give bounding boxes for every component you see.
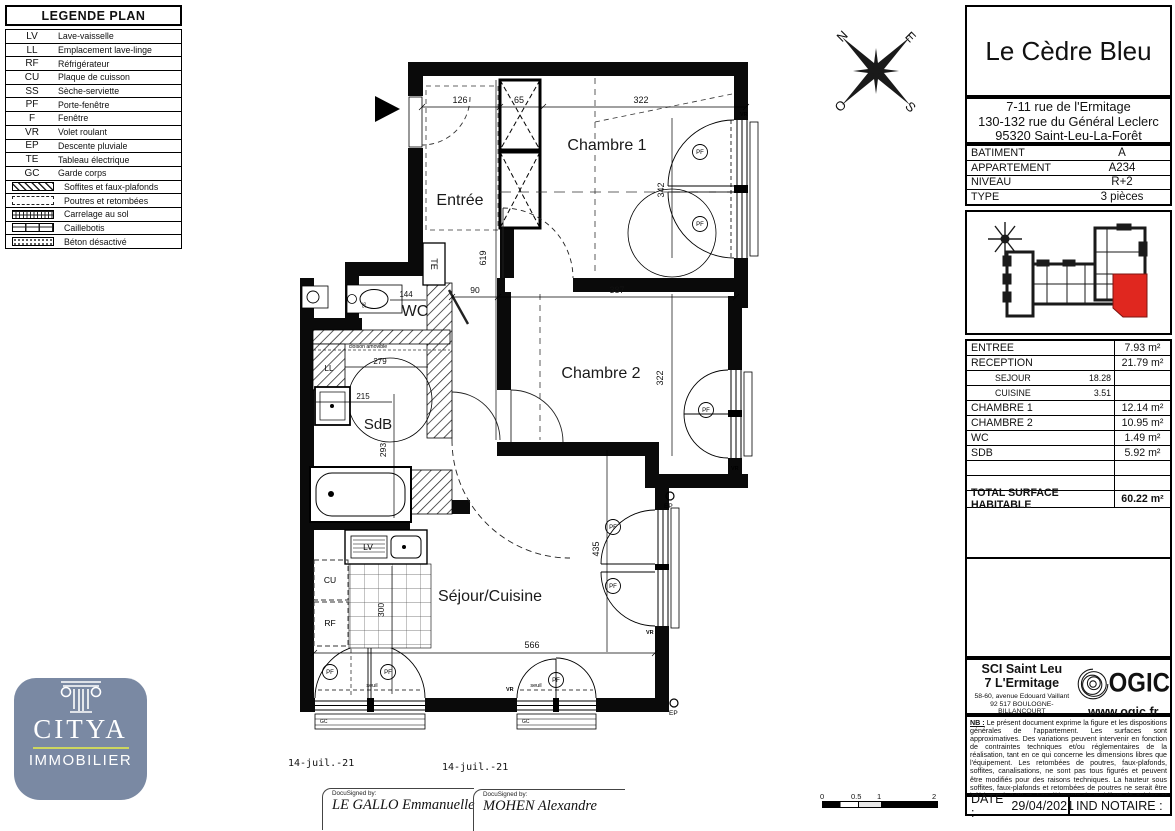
surface-value: 12.14 m² [1115, 402, 1170, 414]
legend-label: Descente pluviale [58, 141, 127, 151]
date-label: DATE : [971, 792, 1003, 820]
info-row: BATIMENTA [967, 146, 1170, 161]
docusign-label: DocuSigned by: [332, 790, 474, 797]
legend-row: VRVolet roulant [6, 126, 181, 140]
signatory-name: MOHEN Alexandre [483, 798, 625, 815]
seuil-label: seuil [530, 683, 541, 689]
info-label: APPARTEMENT [967, 162, 1074, 174]
surface-row: SDB5.92 m² [967, 446, 1170, 461]
svg-text:300: 300 [376, 603, 386, 617]
info-value: A234 [1074, 162, 1170, 174]
signature-date-1: 14-juil.-21 [288, 758, 354, 769]
legend-panel: LEGENDE PLAN LVLave-vaisselle LLEmplacem… [5, 5, 182, 249]
date-row: DATE : 29/04/2021 IND NOTAIRE : [965, 795, 1172, 816]
svg-text:215: 215 [356, 392, 370, 401]
legend-label: Tableau électrique [58, 155, 129, 165]
legend-pattern-row: Caillebotis [6, 222, 181, 236]
info-label: NIVEAU [967, 176, 1074, 188]
surface-label: SEJOUR [971, 373, 1031, 383]
legend-row: LLEmplacement lave-linge [6, 44, 181, 58]
legend-row: GCGarde corps [6, 167, 181, 181]
signature-date-2: 14-juil.-21 [442, 762, 508, 773]
room-sdb: SdB [364, 416, 392, 433]
surface-row: WC1.49 m² [967, 431, 1170, 446]
svg-text:322: 322 [655, 370, 665, 385]
surface-row: CUISINE3.51 [967, 386, 1170, 401]
svg-text:435: 435 [591, 541, 601, 556]
nb-label: NB : [970, 719, 985, 727]
legend-abbr: SS [6, 86, 58, 97]
legend-title: LEGENDE PLAN [5, 5, 182, 26]
legend-pattern-row: Soffites et faux-plafonds [6, 181, 181, 195]
dashed-swatch-icon [12, 196, 54, 205]
legend-abbr: F [6, 113, 58, 124]
cloison-label: cloison amovible [349, 344, 387, 350]
window-sejour-south1: seuil GC [315, 644, 425, 729]
surface-sub: 3.51 [1094, 388, 1111, 398]
svg-text:293: 293 [378, 443, 388, 457]
legend-label: Réfrigérateur [58, 59, 109, 69]
ep-label: EP [669, 710, 678, 717]
legend-abbr: PF [6, 99, 58, 110]
cu-label: CU [324, 575, 336, 585]
surface-value: 10.95 m² [1115, 417, 1170, 429]
svg-text:342: 342 [656, 182, 666, 197]
svg-text:322: 322 [633, 95, 648, 105]
legend-label: Volet roulant [58, 127, 107, 137]
vr-label: VR [731, 466, 739, 472]
compass-s: S [902, 99, 919, 116]
svg-text:279: 279 [373, 357, 387, 366]
info-row: APPARTEMENTA234 [967, 161, 1170, 176]
rf-label: RF [324, 618, 335, 628]
legend-label: Fenêtre [58, 113, 88, 123]
apartment-info-table: BATIMENTA APPARTEMENTA234 NIVEAUR+2 TYPE… [965, 144, 1172, 206]
scale-bar: 0 0.5 1 2 [820, 792, 942, 812]
legend-abbr: LL [6, 45, 58, 56]
ogic-wordmark: OGIC [1109, 669, 1170, 700]
window-chambre2: VR [684, 370, 752, 472]
notaire-label: IND NOTAIRE : [1070, 799, 1163, 813]
info-label: BATIMENT [967, 147, 1074, 159]
surface-label: CUISINE [971, 388, 1031, 398]
surface-sub: 18.28 [1089, 373, 1111, 383]
svg-text:619: 619 [478, 250, 488, 265]
room-chambre2: Chambre 2 [561, 365, 640, 382]
legend-abbr: VR [6, 127, 58, 138]
info-value: R+2 [1074, 176, 1170, 188]
developer-address: 58-60, avenue Edouard Vaillant [967, 693, 1077, 701]
legend-label: Béton désactivé [64, 237, 127, 247]
ogic-logo-icon [1077, 664, 1109, 704]
vr-label: VR [506, 687, 514, 693]
ll-label: LL [325, 364, 334, 373]
surface-label: RECEPTION [971, 357, 1033, 369]
surface-table: ENTREE7.93 m² RECEPTION21.79 m² SEJOUR18… [965, 339, 1172, 559]
entrance-arrow-icon [375, 96, 400, 122]
legend-abbr: RF [6, 58, 58, 69]
legend-row: LVLave-vaisselle [6, 30, 181, 44]
te-label: TE [429, 258, 439, 270]
legend-label: Garde corps [58, 168, 106, 178]
surface-value: 21.79 m² [1115, 357, 1170, 369]
svg-text:PF: PF [384, 670, 392, 676]
svg-text:PF: PF [552, 678, 560, 684]
svg-text:90: 90 [470, 285, 480, 295]
gc-label: GC [522, 719, 530, 725]
info-value: 3 pièces [1074, 191, 1170, 203]
surface-label: WC [971, 432, 989, 444]
citya-subtitle: IMMOBILIER [29, 752, 132, 769]
scale-bar-segments [822, 801, 938, 808]
residence-address: 7-11 rue de l'Ermitage 130-132 rue du Gé… [965, 97, 1172, 144]
dots-swatch-icon [12, 237, 54, 246]
developer-address: 92 517 BOULOGNE-BILLANCOURT [967, 701, 1077, 716]
surface-total-value: 60.22 m² [1115, 493, 1170, 505]
legend-abbr: EP [6, 140, 58, 151]
developer-name: 7 L'Ermitage [967, 677, 1077, 691]
surface-total-label: TOTAL SURFACE HABITABLE [971, 487, 1111, 511]
ep-label: EP [664, 503, 673, 510]
window-sejour-south2: seuil VR GC [506, 658, 596, 729]
developer-box: SCI Saint Leu 7 L'Ermitage 58-60, avenue… [965, 658, 1172, 715]
lv-label: LV [363, 542, 373, 552]
svg-text:96: 96 [362, 302, 368, 308]
svg-text:PF: PF [609, 584, 617, 590]
room-sejour: Séjour/Cuisine [438, 588, 542, 605]
column-capital-icon [52, 678, 110, 714]
docusign-label: DocuSigned by: [483, 791, 625, 798]
scale-tick: 1 [877, 792, 881, 801]
legend-abbr: CU [6, 72, 58, 83]
surface-label: ENTREE [971, 342, 1014, 354]
legend-pattern-row: Carrelage au sol [6, 208, 181, 222]
info-row: TYPE3 pièces [967, 190, 1170, 204]
surface-empty-row [967, 461, 1170, 476]
address-line: 130-132 rue du Général Leclerc [967, 115, 1170, 130]
svg-text:PF: PF [696, 222, 704, 228]
compass-icon: N E O S [826, 24, 926, 119]
svg-text:65: 65 [514, 95, 524, 105]
surface-total-row: TOTAL SURFACE HABITABLE60.22 m² [967, 491, 1170, 508]
surface-value: 5.92 m² [1115, 447, 1170, 459]
surface-value: 7.93 m² [1115, 342, 1170, 354]
surface-label: CHAMBRE 2 [971, 417, 1033, 429]
svg-text:PF: PF [326, 670, 334, 676]
building-keyplan-icon [967, 212, 1170, 333]
empty-box [965, 557, 1172, 658]
grid-swatch-icon [12, 210, 54, 219]
sdb-fixtures [310, 387, 411, 522]
surface-row: CHAMBRE 112.14 m² [967, 401, 1170, 416]
scale-tick: 0 [820, 792, 824, 801]
legend-label: Poutres et retombées [64, 196, 148, 206]
developer-name: SCI Saint Leu [967, 663, 1077, 677]
address-line: 95320 Saint-Leu-La-Forêt [967, 129, 1170, 144]
legend-label: Porte-fenêtre [58, 100, 109, 110]
legend-label: Plaque de cuisson [58, 72, 130, 82]
surface-row: ENTREE7.93 m² [967, 341, 1170, 356]
highlighted-apartment [1113, 274, 1147, 317]
citya-logo: CITYA IMMOBILIER [14, 678, 147, 800]
legend-label: Caillebotis [64, 223, 105, 233]
vr-label: VR [646, 630, 654, 636]
address-line: 7-11 rue de l'Ermitage [967, 100, 1170, 115]
surface-label: CHAMBRE 1 [971, 402, 1033, 414]
electrical-panel: TE [423, 243, 445, 285]
surface-row: RECEPTION21.79 m² [967, 356, 1170, 371]
scale-tick: 0.5 [851, 792, 861, 801]
caillebotis-swatch-icon [12, 223, 54, 232]
docusign-signature-1: DocuSigned by: LE GALLO Emmanuelle [322, 788, 474, 830]
legend-label: Sèche-serviette [58, 86, 119, 96]
surface-row: CHAMBRE 210.95 m² [967, 416, 1170, 431]
date-value: 29/04/2021 [1011, 799, 1074, 813]
svg-text:PF: PF [696, 150, 704, 156]
floor-plan: TE VR VR VR seuil [295, 50, 770, 740]
legend-table: LVLave-vaisselle LLEmplacement lave-ling… [5, 29, 182, 249]
svg-text:PF: PF [609, 525, 617, 531]
site-plan-keymap [965, 210, 1172, 335]
legend-row: EPDescente pluviale [6, 140, 181, 154]
svg-text:566: 566 [524, 640, 539, 650]
legal-notice: NB : Le présent document exprime la figu… [965, 715, 1172, 795]
surface-label: SDB [971, 447, 993, 459]
legend-row: FFenêtre [6, 112, 181, 126]
floor-plan-sheet: { "legend": { "title": "LEGENDE PLAN", "… [0, 0, 1175, 816]
seuil-label: seuil [366, 683, 377, 689]
legend-row: TETableau électrique [6, 153, 181, 167]
legend-label: Carrelage au sol [64, 209, 129, 219]
svg-text:387: 387 [609, 285, 624, 295]
legend-row: RFRéfrigérateur [6, 57, 181, 71]
citya-divider [33, 747, 129, 749]
legend-pattern-row: Poutres et retombées [6, 194, 181, 208]
legend-pattern-row: Béton désactivé [6, 235, 181, 248]
citya-wordmark: CITYA [33, 714, 128, 745]
room-wc: WC [402, 303, 429, 320]
legend-row: CUPlaque de cuisson [6, 71, 181, 85]
info-row: NIVEAUR+2 [967, 176, 1170, 191]
residence-title: Le Cèdre Bleu [965, 5, 1172, 97]
gc-label: GC [320, 719, 328, 725]
legend-row: PFPorte-fenêtre [6, 98, 181, 112]
legend-abbr: TE [6, 154, 58, 165]
surface-value: 1.49 m² [1115, 432, 1170, 444]
svg-text:126: 126 [452, 95, 467, 105]
wc-fixtures [302, 285, 402, 313]
svg-text:144: 144 [399, 290, 413, 299]
scale-tick: 2 [932, 792, 936, 801]
surface-row: SEJOUR18.28 [967, 371, 1170, 386]
room-entree: Entrée [436, 192, 483, 209]
legend-abbr: GC [6, 168, 58, 179]
legend-abbr: LV [6, 31, 58, 42]
hatch-swatch-icon [12, 182, 54, 191]
title-block: Le Cèdre Bleu 7-11 rue de l'Ermitage 130… [965, 5, 1172, 816]
info-label: TYPE [967, 191, 1074, 203]
legend-label: Lave-vaisselle [58, 31, 114, 41]
room-chambre1: Chambre 1 [567, 137, 646, 154]
vr-label: VR [740, 112, 748, 118]
legend-row: SSSèche-serviette [6, 85, 181, 99]
signatory-name: LE GALLO Emmanuelle [332, 797, 474, 814]
docusign-signature-2: DocuSigned by: MOHEN Alexandre [473, 789, 625, 831]
kitchen: LV CU RF [314, 530, 431, 648]
legend-label: Emplacement lave-linge [58, 45, 152, 55]
legend-label: Soffites et faux-plafonds [64, 182, 158, 192]
info-value: A [1074, 147, 1170, 159]
window-chambre1: VR [668, 112, 758, 258]
svg-text:PF: PF [702, 408, 710, 414]
